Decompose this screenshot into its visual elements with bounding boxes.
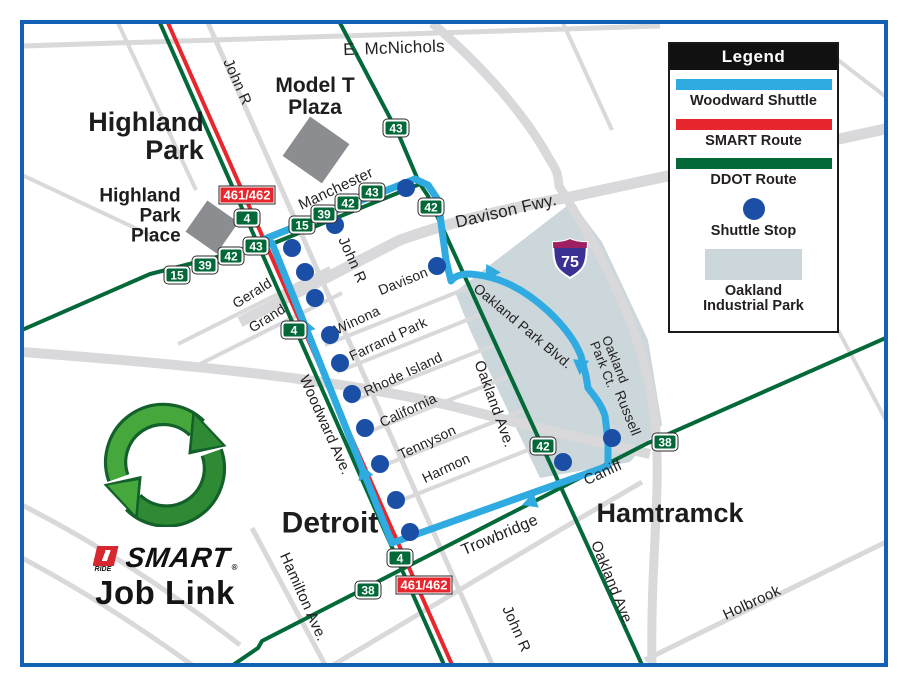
smart-job-link-logo: RIDE SMART ® Job Link	[60, 395, 270, 612]
legend-label: Woodward Shuttle	[690, 94, 817, 110]
street-label: E. McNichols	[343, 38, 445, 59]
legend-item: SMART Route	[670, 119, 837, 150]
legend-items: Woodward ShuttleSMART RouteDDOT RouteShu…	[670, 79, 837, 315]
shuttle-stop-dot	[306, 289, 324, 307]
job-link-text: Job Link	[60, 574, 270, 612]
shuttle-stop-dot	[296, 263, 314, 281]
shuttle-stop-dot	[397, 179, 415, 197]
ddot-route-badge: 4	[388, 550, 413, 567]
ddot-route-badge: 15	[165, 267, 190, 284]
legend: Legend Woodward ShuttleSMART RouteDDOT R…	[668, 42, 839, 333]
smart-text: SMART	[124, 544, 232, 572]
smart-route-badge: 461/462	[220, 187, 275, 204]
shuttle-stop-dot	[554, 453, 572, 471]
ddot-route-badge: 42	[336, 195, 361, 212]
legend-item: Oakland Industrial Park	[670, 249, 837, 315]
ddot-route-badge: 42	[419, 199, 444, 216]
ride-text: RIDE	[95, 566, 112, 573]
ddot-route-badge: 4	[282, 322, 307, 339]
city-label: Highland Park	[88, 108, 204, 164]
shuttle-stop-dot	[343, 385, 361, 403]
interstate-number: 75	[561, 254, 579, 271]
ddot-route-badge: 42	[531, 438, 556, 455]
legend-label: Shuttle Stop	[711, 224, 796, 240]
shuttle-stop-dot	[387, 491, 405, 509]
legend-label: SMART Route	[705, 134, 802, 150]
ddot-route-badge: 42	[219, 248, 244, 265]
transit-map: 75 E. McNicholsJohn RManchesterDavison F…	[0, 0, 908, 689]
shuttle-stop-dot	[603, 429, 621, 447]
registered-mark: ®	[232, 563, 238, 572]
legend-label: Oakland Industrial Park	[703, 284, 804, 315]
ddot-route-badge: 39	[312, 206, 337, 223]
ddot-route-badge: 4	[235, 210, 260, 227]
legend-item: Woodward Shuttle	[670, 79, 837, 110]
ddot-route-badge: 38	[653, 434, 678, 451]
smart-wordmark: RIDE SMART ®	[60, 540, 270, 572]
smart-swoosh	[94, 550, 118, 561]
ddot-route-badge: 38	[356, 582, 381, 599]
legend-swatch-line	[676, 119, 832, 130]
legend-swatch-line	[676, 158, 832, 169]
shuttle-stop-dot	[371, 455, 389, 473]
legend-swatch-line	[676, 79, 832, 90]
ddot-route-badge: 43	[244, 238, 269, 255]
legend-swatch-dot	[743, 198, 765, 220]
shuttle-stop-dot	[283, 239, 301, 257]
shuttle-stop-dot	[428, 257, 446, 275]
model-t-plaza-square	[283, 117, 350, 184]
shuttle-stop-dot	[401, 523, 419, 541]
ddot-route-badge: 43	[360, 184, 385, 201]
legend-title: Legend	[670, 44, 837, 70]
ddot-route-badge: 39	[193, 257, 218, 274]
legend-item: DDOT Route	[670, 158, 837, 189]
city-label: Highland Park Place	[99, 186, 180, 245]
ddot-route-badge: 43	[384, 120, 409, 137]
city-label: Hamtramck	[596, 499, 743, 527]
shuttle-stop-dot	[356, 419, 374, 437]
legend-item: Shuttle Stop	[670, 198, 837, 240]
recycle-arrows-icon	[95, 395, 235, 532]
smart-route-badge: 461/462	[397, 577, 452, 594]
smart-ride-icon: RIDE	[93, 546, 121, 572]
shuttle-stop-dot	[321, 326, 339, 344]
city-label: Model T Plaza	[275, 75, 354, 119]
shuttle-stop-dot	[331, 354, 349, 372]
legend-label: DDOT Route	[710, 173, 796, 189]
legend-swatch-area	[705, 249, 802, 280]
highland-park-place-square	[186, 201, 239, 254]
city-label: Detroit	[282, 507, 379, 538]
